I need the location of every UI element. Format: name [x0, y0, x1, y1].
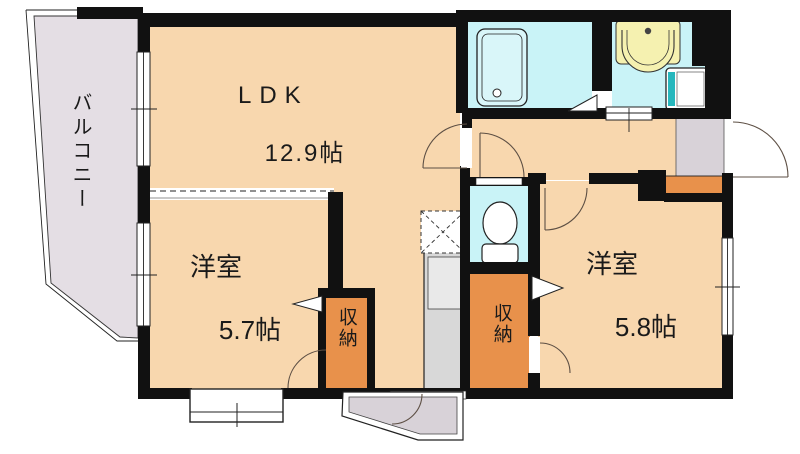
storage-right-label: 収納 — [489, 303, 512, 345]
ldk-size: 12.9帖 — [265, 140, 346, 167]
washing-machine-panel — [668, 72, 675, 106]
sliding-partition — [150, 188, 334, 200]
ldk-name: LDK — [238, 82, 309, 109]
storage-left-label: 収納 — [334, 307, 357, 349]
washing-machine — [666, 68, 708, 110]
balcony-divider-wall — [77, 7, 143, 19]
washbasin — [616, 20, 680, 72]
bedroom-right-label: 洋室 5.8帖 — [586, 249, 677, 344]
bedroom-right-name: 洋室 — [586, 249, 638, 279]
storage-right-door-opening — [529, 337, 540, 373]
bay-window — [190, 389, 283, 427]
hallway-floor — [464, 112, 678, 180]
entrance-door-arc — [733, 122, 788, 177]
porch — [342, 392, 463, 440]
ldk-door-opening — [461, 128, 472, 168]
faucet — [645, 28, 651, 34]
kitchen-counter — [424, 252, 466, 390]
bedroom-left-name: 洋室 — [190, 252, 242, 282]
refrigerator-space — [421, 211, 465, 253]
bedroom-left-size: 5.7帖 — [219, 315, 281, 345]
toilet — [482, 202, 518, 263]
bathtub — [477, 29, 527, 106]
ldk-label: LDK 12.9帖 — [238, 82, 345, 168]
balcony-label: バルコニー — [68, 92, 92, 212]
toilet-tank — [482, 244, 518, 263]
bedroom-right-size: 5.8帖 — [615, 312, 677, 342]
bathtub-drain — [493, 89, 501, 97]
entrance-genkan — [676, 118, 724, 177]
floorplan-drawing — [0, 0, 800, 454]
bedroom-left-label: 洋室 5.7帖 — [190, 252, 281, 347]
kitchen-sink — [428, 257, 462, 309]
floorplan: バルコニー LDK 12.9帖 洋室 5.7帖 洋室 5.8帖 収納 収納 — [0, 0, 800, 454]
toilet-door — [476, 178, 522, 185]
shoe-cabinet — [664, 176, 724, 194]
